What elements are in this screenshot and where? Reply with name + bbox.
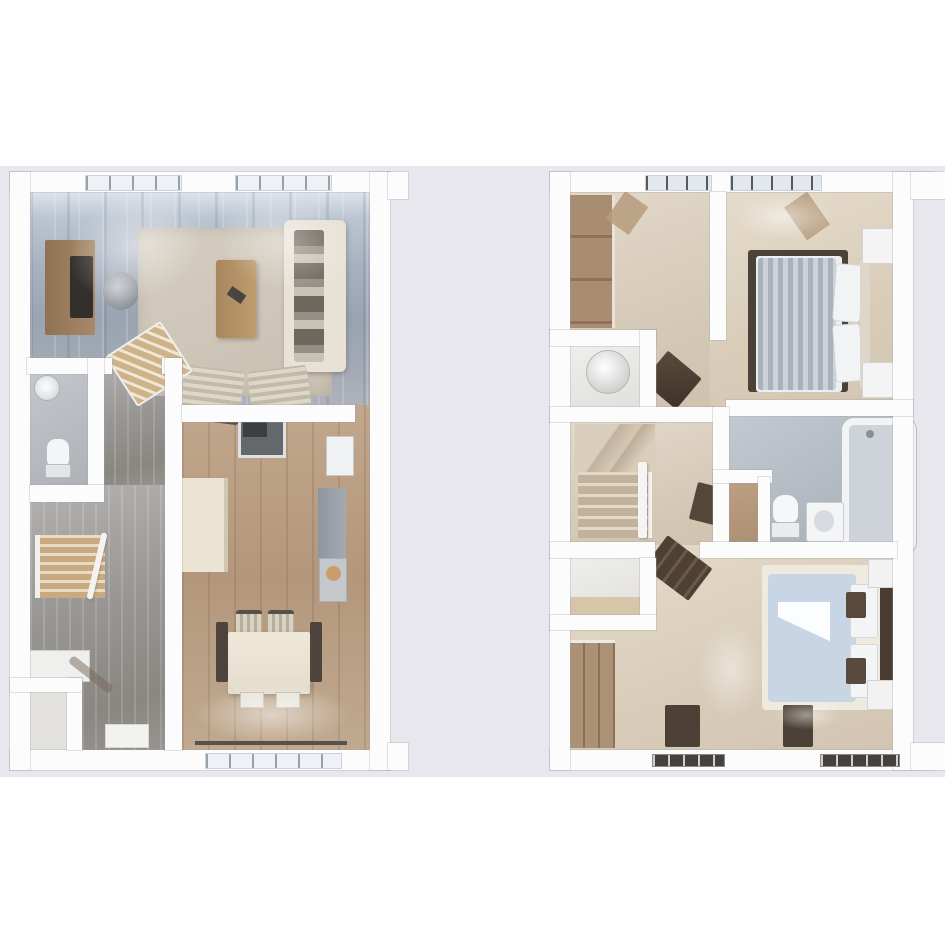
runner-rug	[665, 705, 700, 747]
built-in-wardrobe	[570, 640, 615, 748]
window-light	[735, 194, 835, 240]
dining-chair-left	[216, 622, 228, 682]
wall-bathroom-bottom	[700, 542, 897, 558]
wall-bedroom2-top	[550, 542, 655, 558]
toilet-bowl	[772, 494, 799, 524]
window-light	[56, 192, 213, 302]
wall-outer-top	[10, 172, 390, 192]
wall-cupboard-top	[10, 678, 82, 692]
fridge	[326, 436, 354, 476]
window	[85, 175, 182, 191]
wall-hall-kitchen	[165, 358, 182, 750]
cushion	[846, 592, 866, 618]
wall-stairs-top	[550, 407, 713, 422]
window-light	[211, 192, 359, 292]
cushion	[846, 658, 866, 684]
wall-notch-top-right	[911, 172, 945, 199]
toilet-cistern	[771, 522, 800, 538]
door-threshold	[195, 741, 347, 745]
wall-closet2-right	[640, 558, 656, 615]
floor-plan-illustration	[0, 0, 945, 945]
fruit-bowl	[326, 566, 341, 581]
wall-outer-right	[370, 172, 390, 770]
linen-cupboard-floor	[729, 483, 758, 545]
window	[652, 754, 725, 767]
wall-living-kitchen	[182, 405, 355, 422]
wall-notch-top-right	[388, 172, 408, 199]
wall-notch-bottom-right	[911, 743, 945, 770]
stair-newel	[638, 462, 647, 538]
duvet-fold	[778, 602, 830, 664]
wall-notch-bottom-right	[388, 743, 408, 770]
window	[730, 175, 822, 191]
wall-wc-right	[88, 358, 104, 502]
ground-floor-plan	[10, 172, 390, 770]
window	[820, 754, 900, 767]
basin-bowl	[814, 510, 834, 532]
door-mat	[105, 724, 149, 748]
washbasin	[34, 375, 60, 401]
bath-drain	[866, 430, 874, 438]
cupboard-floor	[30, 692, 67, 750]
toilet-cistern	[45, 464, 71, 478]
worktop	[318, 488, 346, 558]
window	[645, 175, 712, 191]
water-cylinder	[586, 350, 630, 394]
wall-wc-bottom	[30, 485, 104, 502]
duvet-grey	[758, 258, 836, 390]
wall-outer-right	[893, 172, 913, 770]
closet-shelf	[570, 597, 640, 615]
wall-landing-bedroom1	[710, 192, 726, 340]
first-floor-plan	[550, 172, 933, 770]
window	[235, 175, 332, 191]
window-light	[772, 700, 842, 730]
window-light	[698, 622, 764, 717]
wall-linen-right	[758, 477, 770, 545]
french-window	[205, 753, 342, 769]
island-counter	[180, 478, 228, 572]
wall-bedroom1-bathroom	[726, 400, 913, 416]
window-light	[195, 684, 350, 744]
wall-closet2-bottom	[550, 615, 656, 630]
dining-chair-right	[310, 622, 322, 682]
wall-outer-left	[550, 172, 570, 770]
